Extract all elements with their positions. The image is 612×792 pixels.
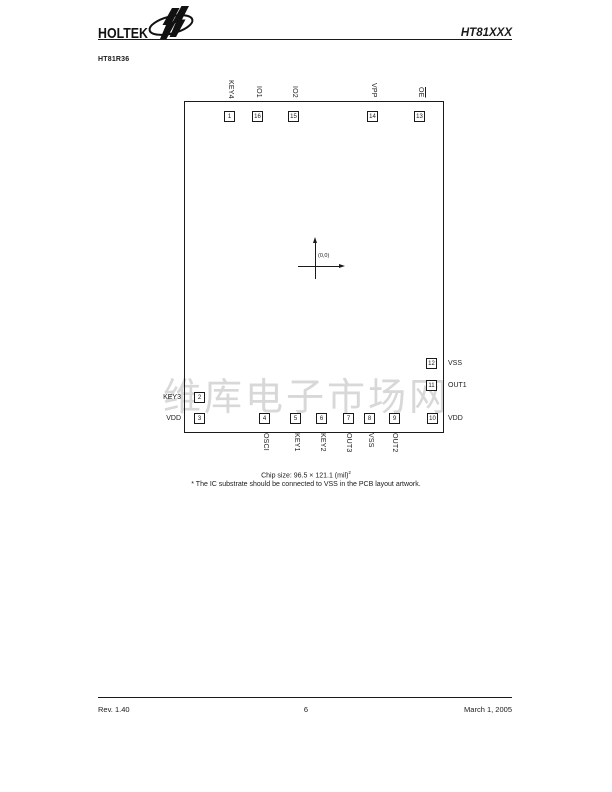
footer-page-number: 6: [0, 705, 612, 714]
pad-label-io1: IO1: [254, 86, 262, 98]
footer-date: March 1, 2005: [464, 705, 512, 714]
header-rule: [98, 39, 512, 40]
pad-square-2: 2: [194, 392, 205, 403]
pad-square-1: 1: [224, 111, 235, 122]
pad-square-9: 9: [389, 413, 400, 424]
pad-square-5: 5: [290, 413, 301, 424]
pad-label-io2: IO2: [290, 86, 298, 98]
pad-square-12: 12: [426, 358, 437, 369]
pad-label-out1: OUT1: [448, 382, 467, 390]
caption-chip-size-sup: 2: [348, 470, 351, 475]
pad-square-8: 8: [364, 413, 375, 424]
pad-square-11: 11: [426, 380, 437, 391]
footer-rule: [98, 697, 512, 698]
pad-label-out3: OUT3: [344, 433, 352, 452]
pad-square-10: 10: [427, 413, 438, 424]
pad-label-out2: OUT2: [390, 433, 398, 452]
axis-right-arrow-icon: [339, 264, 345, 268]
pad-label-vdd-left: VDD: [141, 415, 181, 423]
caption-chip-size: Chip size: 96.5 × 121.1 (mil)2: [0, 470, 612, 479]
pad-label-vss-right: VSS: [448, 360, 462, 368]
doc-title: HT81XXX: [461, 27, 512, 39]
section-title: HT81R36: [98, 56, 129, 63]
pad-label-key4: KEY4: [226, 80, 234, 99]
pad-square-13: 13: [414, 111, 425, 122]
origin-label: (0,0): [318, 253, 329, 259]
pad-label-key3: KEY3: [141, 394, 181, 402]
pad-label-key1: KEY1: [292, 433, 300, 452]
caption-note: * The IC substrate should be connected t…: [0, 481, 612, 488]
pad-label-oe: OE: [416, 87, 424, 98]
pad-label-vss-bottom: VSS: [366, 433, 374, 448]
pad-square-3: 3: [194, 413, 205, 424]
pad-square-7: 7: [343, 413, 354, 424]
pad-label-vpp: VPP: [369, 83, 377, 98]
caption-chip-size-text: Chip size: 96.5 × 121.1 (mil): [261, 472, 348, 479]
logo-emblem-icon: [148, 6, 195, 39]
pad-square-6: 6: [316, 413, 327, 424]
axis-horizontal-line: [298, 266, 340, 267]
chip-outline: [184, 101, 444, 433]
pad-label-key2: KEY2: [318, 433, 326, 452]
axis-vertical-line: [315, 242, 316, 279]
pad-square-16: 16: [252, 111, 263, 122]
pad-square-14: 14: [367, 111, 378, 122]
pad-square-4: 4: [259, 413, 270, 424]
pad-label-vdd-right: VDD: [448, 415, 463, 423]
pad-square-15: 15: [288, 111, 299, 122]
datasheet-page: HOLTEK HT81XXX HT81R36 维库电子市场网 KEY4 IO1 …: [0, 0, 612, 792]
holtek-logo: HOLTEK: [96, 4, 200, 44]
pad-label-osci: OSCI: [261, 433, 269, 451]
